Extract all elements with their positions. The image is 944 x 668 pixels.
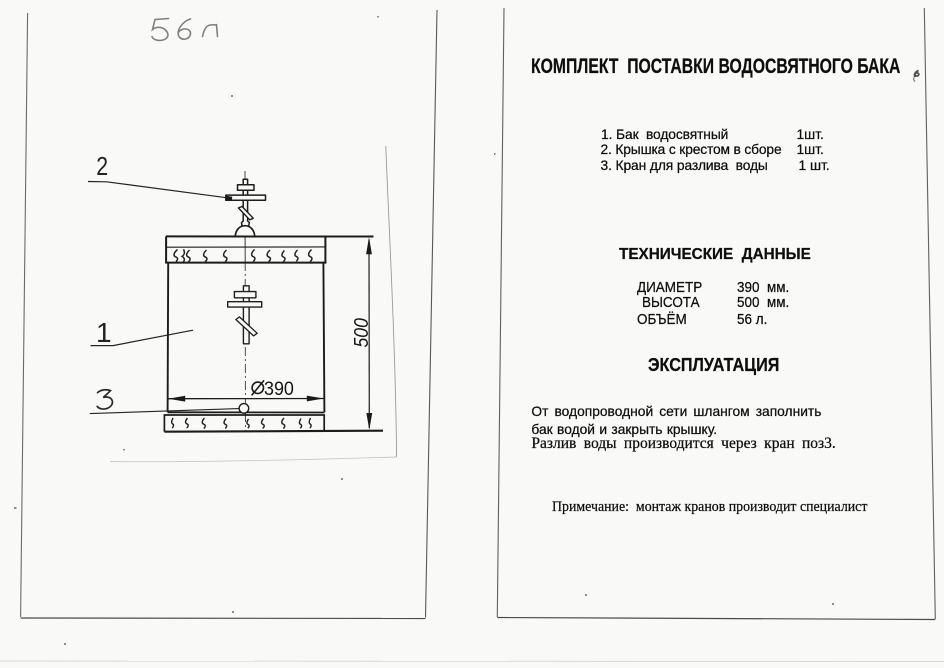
svg-text:1: 1 — [96, 317, 112, 348]
svg-text:390: 390 — [264, 377, 294, 399]
svg-text:500: 500 — [350, 318, 372, 348]
svg-text:2: 2 — [96, 152, 108, 182]
